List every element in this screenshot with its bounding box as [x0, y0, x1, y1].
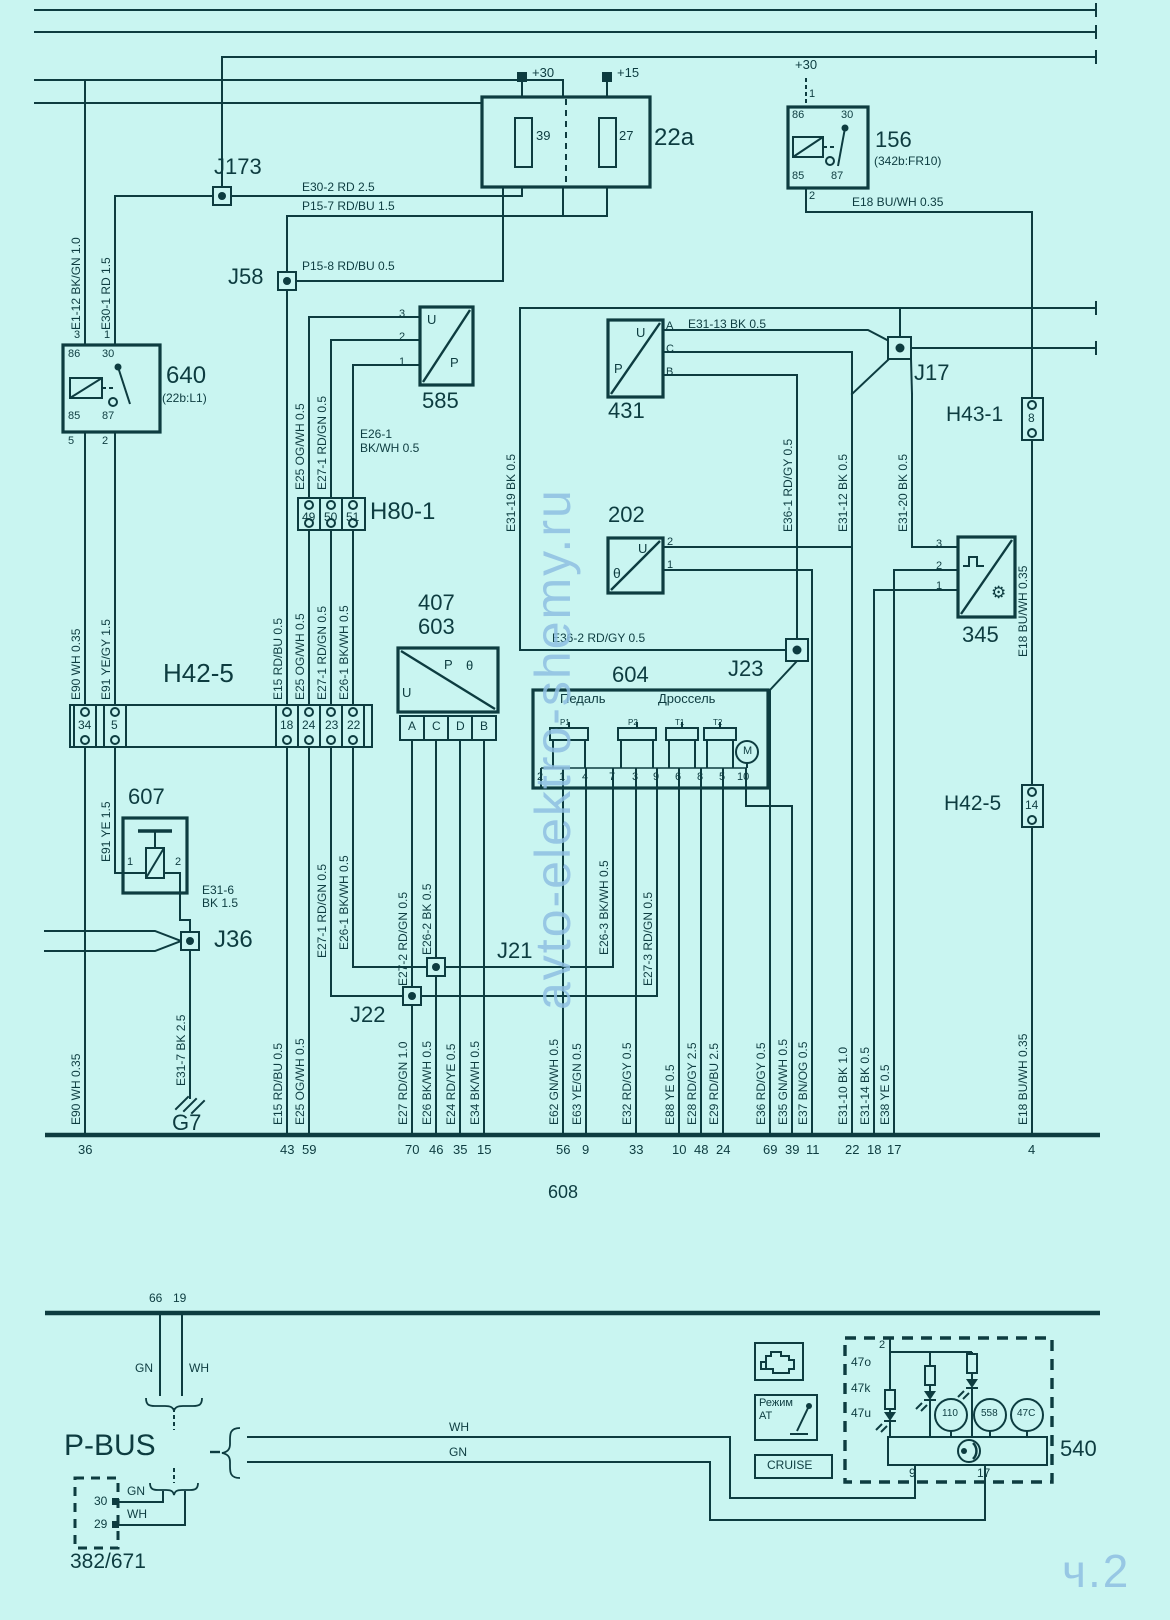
module382-wire-wh: WH — [127, 1508, 147, 1520]
sensor202-theta: θ — [613, 566, 621, 580]
connector-h42l-pin23: 23 — [325, 719, 338, 731]
relay156-sub: (342b:FR10) — [874, 155, 941, 167]
relay156-85: 85 — [792, 171, 804, 182]
wire-e31-12: E31-12 BK 0.5 — [837, 454, 849, 532]
module382-pin29: 29 — [94, 1518, 107, 1530]
fuse-39-label: 39 — [536, 129, 550, 142]
relay640-contact — [109, 398, 117, 406]
relay156-id: 156 — [875, 129, 912, 151]
wire-e27-1-h80: E27-1 RD/GN 0.5 — [316, 396, 328, 490]
wire-e15-bus: E15 RD/BU 0.5 — [272, 1043, 284, 1125]
bus-pin-11: 11 — [806, 1143, 820, 1156]
connector-h80-label: H80-1 — [370, 500, 435, 524]
relay156-86: 86 — [792, 110, 804, 121]
bus-pin-59: 59 — [302, 1143, 316, 1156]
wire-e26-bus: E26 BK/WH 0.5 — [421, 1041, 433, 1125]
wire-e26-1-mid: E26-1 BK/WH 0.5 — [338, 605, 350, 700]
pbus-label: P-BUS — [64, 1431, 156, 1461]
junction-j58-label: J58 — [228, 266, 263, 288]
motor-icon-label: M — [743, 746, 752, 757]
relay640-id: 640 — [166, 364, 206, 388]
wire-e36-bus: E36 RD/GY 0.5 — [755, 1043, 767, 1126]
wire-e31-14-bus: E31-14 BK 0.5 — [859, 1047, 871, 1125]
bus-pin-56: 56 — [556, 1143, 570, 1156]
fusebox-22a-label: 22a — [654, 126, 694, 150]
wire-e27-2: E27-2 RD/GN 0.5 — [397, 892, 409, 986]
module345-id: 345 — [962, 624, 999, 646]
sensor407-pinC: C — [432, 720, 441, 732]
wire-e88-bus: E88 YE 0.5 — [664, 1065, 676, 1126]
wire-e31-7: E31-7 BK 2.5 — [175, 1015, 187, 1086]
bus-pin-70: 70 — [405, 1143, 419, 1156]
bus-pin-4: 4 — [1028, 1143, 1035, 1156]
unit604-t1: T1 — [675, 719, 684, 727]
bus-pin-39: 39 — [785, 1143, 799, 1156]
wire-e31-20: E31-20 BK 0.5 — [897, 454, 909, 532]
wire-p15-8: P15-8 RD/BU 0.5 — [302, 260, 395, 272]
sensor431-pinC: C — [666, 344, 674, 355]
sensor202-pin1: 1 — [667, 560, 673, 571]
module382-pin30-tab — [112, 1498, 119, 1505]
relay156-pin1: 1 — [809, 89, 815, 100]
sensor202-u: U — [638, 542, 647, 555]
wire-e26-1-b: BK/WH 0.5 — [360, 442, 419, 454]
sensor431-p: P — [614, 362, 623, 375]
plus15-terminal-icon — [602, 72, 612, 82]
module382-pin29-tab — [112, 1521, 119, 1528]
solenoid607-pin2: 2 — [175, 857, 181, 868]
wire-e31-19: E31-19 BK 0.5 — [505, 454, 517, 532]
fuse-27-icon — [599, 118, 616, 167]
cluster540-47u: 47u — [851, 1407, 871, 1419]
cluster540-47o: 47o — [851, 1356, 871, 1368]
unit604-pin-10: 10 — [737, 772, 749, 783]
wire-e32-bus: E32 RD/GY 0.5 — [621, 1043, 633, 1126]
junction-j173-label: J173 — [214, 156, 262, 178]
wire-e28-bus: E28 RD/GY 2.5 — [686, 1043, 698, 1126]
wire-e91-mid: E91 YE/GY 1.5 — [100, 619, 112, 700]
wire-e31-6-a: E31-6 — [202, 884, 234, 896]
connector-h43-label: H43-1 — [946, 404, 1003, 425]
unit604-pin-8: 8 — [697, 772, 703, 783]
cluster540-id: 540 — [1060, 1438, 1097, 1460]
bus-pin-43: 43 — [280, 1143, 294, 1156]
junction-j22-label: J22 — [350, 1004, 385, 1026]
unit604-pin-9: 9 — [653, 772, 659, 783]
relay640-pin2: 2 — [102, 436, 108, 447]
relay640-30: 30 — [102, 349, 114, 360]
wire-e31-6-b: BK 1.5 — [202, 897, 238, 909]
gear-shift-knob — [806, 1403, 812, 1409]
sensor585-u: U — [427, 313, 436, 326]
module382-wire-gn: GN — [127, 1485, 145, 1497]
pbus-wire-gn-top: GN — [135, 1362, 153, 1374]
wire-e27-bus: E27 RD/GN 1.0 — [397, 1042, 409, 1125]
wire-e91-ye: E91 YE 1.5 — [100, 802, 112, 863]
connector-h42l-pin22: 22 — [347, 719, 360, 731]
connector-h80-pin50: 50 — [324, 511, 337, 523]
sensor407-u: U — [402, 686, 411, 699]
watermark-text: avto-elektro-shemy.ru — [528, 488, 578, 1010]
pbus-wire-wh: WH — [449, 1421, 469, 1433]
part-label: ч.2 — [1062, 1548, 1130, 1594]
plus30-terminal-icon — [517, 72, 527, 82]
ground-g7-label: G7 — [172, 1112, 201, 1134]
wire-p15-7: P15-7 RD/BU 1.5 — [302, 200, 395, 212]
sensor603-id: 603 — [418, 616, 455, 638]
unit604-t2: T2 — [713, 719, 722, 727]
wire-e34-bus: E34 BK/WH 0.5 — [469, 1041, 481, 1125]
relay156-pivot — [842, 125, 849, 132]
ground-bus-lines — [45, 1135, 1100, 1313]
pbus-pin-66: 66 — [149, 1292, 162, 1304]
wire-e25-bus: E25 OG/WH 0.5 — [294, 1038, 306, 1125]
wire-e38-bus: E38 YE 0.5 — [879, 1065, 891, 1126]
power-plus30-fuse: +30 — [532, 66, 554, 79]
relay640-86: 86 — [68, 349, 80, 360]
wire-e15-mid: E15 RD/BU 0.5 — [272, 618, 284, 700]
bus-pin-46: 46 — [429, 1143, 443, 1156]
module382-id: 382/671 — [70, 1551, 146, 1572]
unit604-throttle-label: Дроссель — [658, 692, 715, 705]
unit604-pin-3: 3 — [632, 772, 638, 783]
wire-e18-bus: E18 BU/WH 0.35 — [1017, 1034, 1029, 1125]
cluster540-gauge-47c: 47C — [1017, 1409, 1035, 1419]
connector-h43-pin8: 8 — [1028, 412, 1035, 424]
bus-pin-24: 24 — [716, 1143, 730, 1156]
wire-e90-mid: E90 WH 0.35 — [70, 629, 82, 700]
connector-h42l-label: H42-5 — [163, 660, 234, 686]
sensor407-pinD: D — [456, 720, 465, 732]
wire-e30-1: E30-1 RD 1.5 — [100, 257, 112, 330]
wire-e29-bus: E29 RD/BU 2.5 — [708, 1043, 720, 1125]
gear-icon: ⚙ — [991, 584, 1006, 601]
sensor585-pin2: 2 — [399, 332, 405, 343]
relay640-pin5: 5 — [68, 436, 74, 447]
module345-pin1: 1 — [936, 581, 942, 592]
relay156-contact — [826, 157, 834, 165]
fuse-39-icon — [515, 118, 532, 167]
bus-pin-10: 10 — [672, 1143, 686, 1156]
connector-h80-pin51: 51 — [346, 511, 359, 523]
connector-h42l-pin34: 34 — [78, 719, 91, 731]
unit604-pin-7: 7 — [609, 772, 615, 783]
relay156-pin2: 2 — [809, 191, 815, 202]
bus-pin-36: 36 — [78, 1143, 92, 1156]
wire-e36-1: E36-1 RD/GY 0.5 — [782, 439, 794, 532]
pbus-wire-gn: GN — [449, 1446, 467, 1458]
wire-e26-2: E26-2 BK 0.5 — [421, 884, 433, 955]
mode-box-line2: AT — [759, 1411, 772, 1422]
solenoid607-id: 607 — [128, 786, 165, 808]
wire-e31-10-bus: E31-10 BK 1.0 — [837, 1047, 849, 1125]
relay156-30: 30 — [841, 110, 853, 121]
unit604-pin-4: 4 — [582, 772, 588, 783]
module345-pin2: 2 — [936, 561, 942, 572]
sensor407-id: 407 — [418, 592, 455, 614]
sensor431-pinA: A — [666, 321, 673, 332]
cluster540-gauge-558: 558 — [981, 1409, 998, 1419]
sensor407-pinB: B — [480, 720, 488, 732]
sensor407-pinA: A — [408, 720, 416, 732]
relay640-pin3: 3 — [74, 330, 80, 341]
module382-box — [75, 1478, 118, 1548]
cluster540-47k: 47k — [851, 1382, 870, 1394]
sensor202-pin2: 2 — [667, 537, 673, 548]
power-plus15-fuse: +15 — [617, 66, 639, 79]
sensor585-p: P — [450, 356, 459, 369]
unit604-p2: P2 — [628, 719, 638, 727]
wire-e25-mid: E25 OG/WH 0.5 — [294, 613, 306, 700]
wire-e18-top: E18 BU/WH 0.35 — [852, 196, 943, 208]
cruise-box-label: CRUISE — [767, 1459, 812, 1471]
bus-pin-22: 22 — [845, 1143, 859, 1156]
junction-j17-label: J17 — [914, 362, 949, 384]
connector-h80-pin49: 49 — [302, 511, 315, 523]
connector-h42r-label: H42-5 — [944, 793, 1001, 814]
wire-e27-1-mid: E27-1 RD/GN 0.5 — [316, 606, 328, 700]
connector-h42r-pin14: 14 — [1025, 799, 1038, 811]
bus-pin-69: 69 — [763, 1143, 777, 1156]
cluster540-pin2: 2 — [879, 1340, 885, 1351]
sensor585-pin1: 1 — [399, 357, 405, 368]
pbus-pin-19: 19 — [173, 1292, 186, 1304]
buzzer-icon — [958, 1440, 980, 1462]
wire-e62-bus: E62 GN/WH 0.5 — [548, 1039, 560, 1125]
wire-e90-bus: E90 WH 0.35 — [70, 1054, 82, 1125]
fuse-27-label: 27 — [619, 129, 633, 142]
sensor202-id: 202 — [608, 504, 645, 526]
pbus-wire-wh-top: WH — [189, 1362, 209, 1374]
relay640-pivot — [115, 364, 122, 371]
wiring-diagram-page: J173E30-2 RD 2.5P15-7 RD/BU 1.5J58P15-8 … — [0, 0, 1170, 1620]
wire-e26-1-a: E26-1 — [360, 428, 392, 440]
unit604-pin-6: 6 — [675, 772, 681, 783]
unit604-id: 604 — [612, 664, 649, 686]
wire-e35-bus: E35 GN/WH 0.5 — [777, 1039, 789, 1125]
sensor431-pinB: B — [666, 367, 673, 378]
wire-e30-2: E30-2 RD 2.5 — [302, 181, 375, 193]
wire-e25-h80: E25 OG/WH 0.5 — [294, 403, 306, 490]
cluster540-pin17: 17 — [977, 1467, 990, 1479]
cluster540-pin9: 9 — [909, 1467, 916, 1479]
wire-e37-bus: E37 BN/OG 0.5 — [797, 1042, 809, 1125]
bus-pin-35: 35 — [453, 1143, 467, 1156]
sensor431-u: U — [636, 326, 645, 339]
wire-e31-13: E31-13 BK 0.5 — [688, 318, 766, 330]
sensor585-id: 585 — [422, 390, 459, 412]
unit604-pin-5: 5 — [719, 772, 725, 783]
module345-pin3: 3 — [936, 539, 942, 550]
wire-e26-1-low: E26-1 BK/WH 0.5 — [338, 855, 350, 950]
power-plus30-relay: +30 — [795, 58, 817, 71]
bus-pin-18: 18 — [867, 1143, 881, 1156]
relay640-pin1: 1 — [104, 330, 110, 341]
bus-pin-15: 15 — [477, 1143, 491, 1156]
relay640-sub: (22b:L1) — [162, 392, 207, 404]
sensor407-p: P — [444, 658, 453, 671]
wire-e26-3: E26-3 BK/WH 0.5 — [598, 860, 610, 955]
sensor585-pin3: 3 — [399, 309, 405, 320]
bus-pin-48: 48 — [694, 1143, 708, 1156]
module382-pin30: 30 — [94, 1495, 107, 1507]
sensor407-theta: θ — [466, 659, 473, 672]
junction-j36-label: J36 — [214, 928, 253, 952]
solenoid607-pin1: 1 — [127, 857, 133, 868]
bus-pin-33: 33 — [629, 1143, 643, 1156]
bus-pin-17: 17 — [887, 1143, 901, 1156]
bus-pin-9: 9 — [582, 1143, 589, 1156]
relay640-87: 87 — [102, 411, 114, 422]
connector-h42l-pin24: 24 — [302, 719, 315, 731]
bus-608-label: 608 — [548, 1183, 578, 1201]
connector-h42l-pin18: 18 — [280, 719, 293, 731]
wire-e24-bus: E24 RD/YE 0.5 — [445, 1044, 457, 1125]
wire-e1-12: E1-12 BK/GN 1.0 — [70, 237, 82, 330]
wire-e63-bus: E63 YE/GN 0.5 — [571, 1043, 583, 1125]
wire-e27-1-low: E27-1 RD/GN 0.5 — [316, 864, 328, 958]
relay640-85: 85 — [68, 411, 80, 422]
cluster540-gauge-110: 110 — [942, 1409, 958, 1419]
junction-j23-label: J23 — [728, 658, 763, 680]
wire-e27-3: E27-3 RD/GN 0.5 — [642, 892, 654, 986]
connector-h42l-pin5: 5 — [111, 719, 118, 731]
relay156-87: 87 — [831, 171, 843, 182]
sensor431-id: 431 — [608, 400, 645, 422]
wire-e18-right: E18 BU/WH 0.35 — [1017, 566, 1029, 657]
mode-box-line1: Режим — [759, 1398, 793, 1409]
